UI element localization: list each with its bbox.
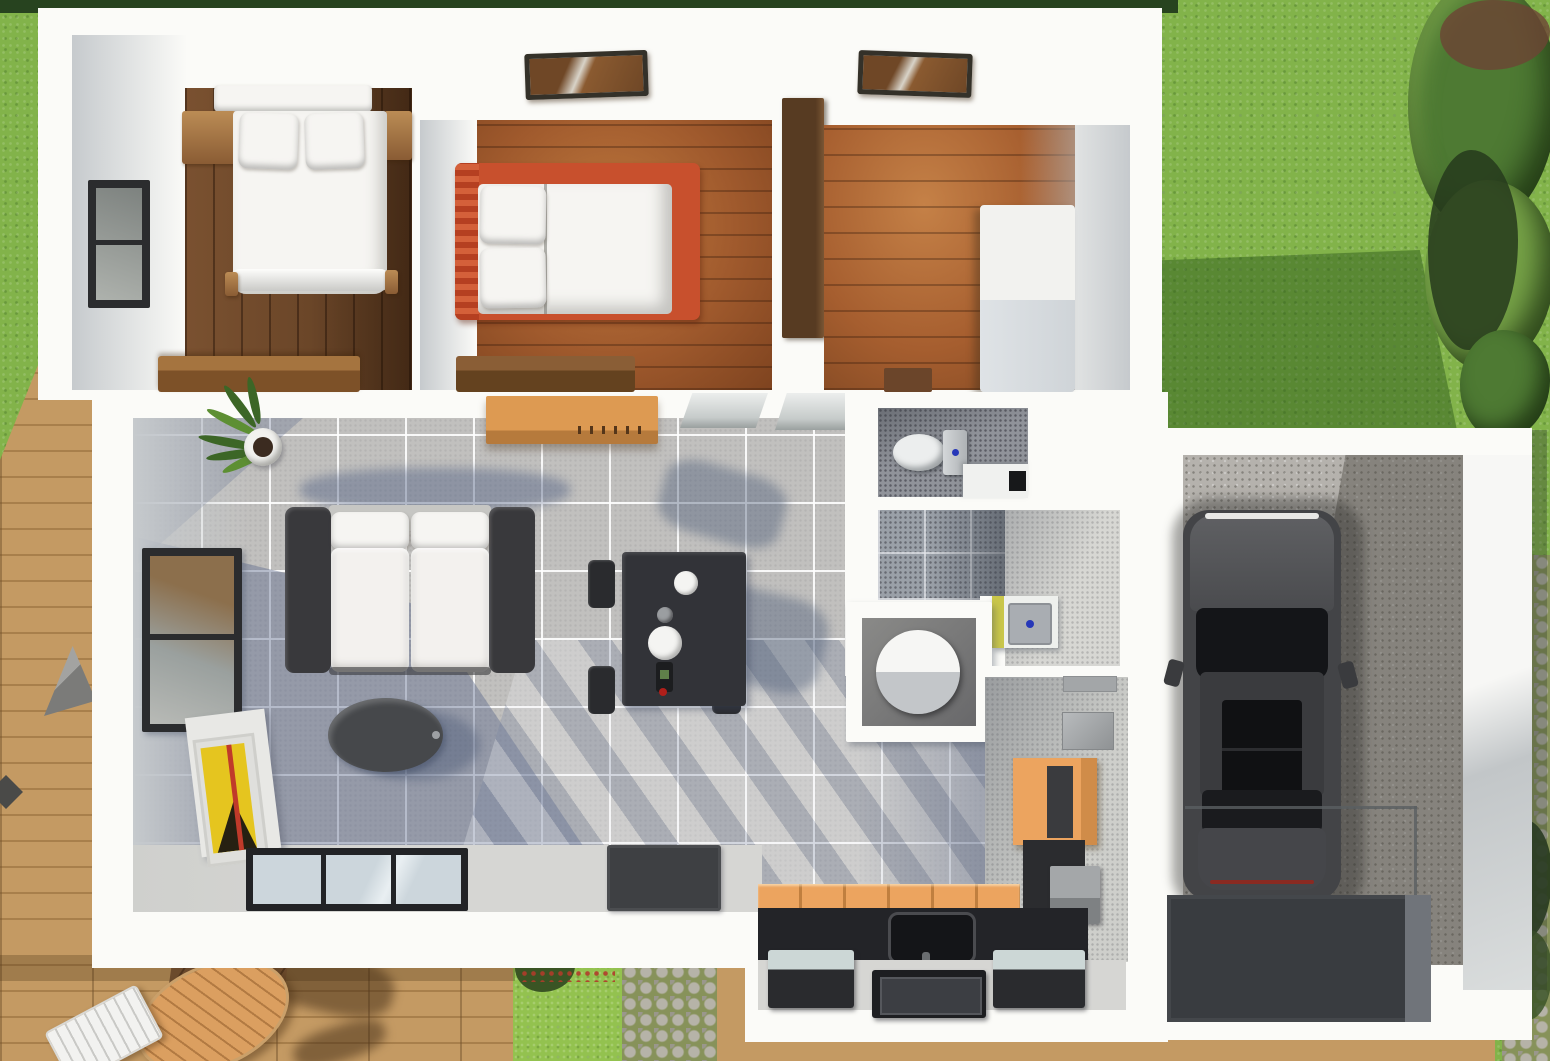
floor-glass-mullion-2 [391, 855, 396, 904]
plant-pot [244, 428, 282, 466]
living-window-glass [150, 556, 234, 724]
bedroom1-dresser [158, 356, 360, 392]
living-window-bar [150, 634, 234, 640]
plant-soil [253, 437, 273, 457]
garage-wall-shadow-grass [1532, 430, 1547, 990]
bedroom3-step [884, 368, 932, 392]
plate-small [674, 571, 698, 595]
bed1-footroll [229, 269, 391, 291]
car [1178, 505, 1346, 905]
tv-shelf-vents [578, 426, 648, 434]
bed2-headboard-slats [455, 163, 479, 320]
bed1-foot-left [225, 272, 238, 296]
kitchen-appliance-2 [993, 950, 1085, 1008]
bathroom-mid-shade [930, 510, 1005, 600]
bed1-pillow-right [304, 112, 365, 170]
dining-chair-2 [588, 666, 615, 714]
bathroom-sink-unit [992, 596, 1058, 648]
bedroom3-cabinet-lower [980, 300, 1075, 392]
clerestory-window-1 [680, 393, 768, 428]
sink-side-yellow [992, 596, 1004, 648]
dining-table [622, 552, 746, 706]
lawn-shadow [1125, 250, 1460, 445]
bed1-nightstand-left [182, 111, 236, 164]
bedroom2-skylight [524, 50, 649, 100]
kitchen-sink [888, 912, 976, 964]
tall-cabinet-door-dark [1047, 766, 1073, 838]
glass-rail-horizontal [1185, 806, 1417, 809]
kitchen-stove [872, 970, 986, 1018]
car-sunroof [1222, 700, 1302, 800]
coffee-table-knob [432, 731, 440, 739]
garage-right-wall-shade [1463, 455, 1532, 990]
car-roofline-strip [1205, 513, 1319, 519]
sofa-backcushion-left [331, 512, 409, 550]
coffee-table [328, 698, 443, 772]
bed1-nightstand-right [384, 111, 412, 160]
bed1-pillow-left [238, 112, 299, 170]
toilet-bowl [893, 434, 945, 471]
sink-basin [1008, 603, 1052, 645]
car-taillight [1210, 880, 1314, 884]
artwork-picture [200, 743, 257, 854]
sink-drain [1026, 620, 1034, 628]
tv-shelf [486, 396, 658, 444]
car-sunroof-seam [1222, 748, 1302, 751]
toilet-flush-button [952, 449, 959, 456]
car-windshield [1196, 608, 1328, 680]
bottle-red-dot [659, 688, 667, 696]
bedroom3-wardrobe [782, 98, 824, 338]
driveway-curb [1405, 895, 1431, 1022]
floorplan-render [0, 0, 1550, 1061]
entry-rug [607, 845, 721, 911]
bedroom3-skylight [857, 50, 972, 98]
kitchen-appliance-1 [768, 950, 854, 1008]
kitchen-wall-panel-2 [1062, 712, 1114, 750]
sofa-base-shadow [329, 667, 491, 675]
bottle-label [660, 670, 669, 679]
bed1-headboard [214, 85, 372, 112]
sofa [285, 505, 535, 675]
stove-glass [880, 977, 982, 1015]
tall-cabinet-side [1081, 758, 1097, 845]
wc-vanity-basin [1009, 471, 1026, 491]
shower-cylinder [876, 630, 960, 714]
floor-glass-pane [253, 855, 461, 904]
sofa-arm-left [285, 507, 331, 673]
dining-chair-1 [588, 560, 615, 608]
plate-large [648, 626, 682, 660]
shower-interior [862, 618, 976, 726]
sofa-seat-left [331, 548, 409, 672]
bed2-pillow-top [479, 185, 546, 244]
wc-vanity [963, 464, 1028, 498]
bed2-pillow-bottom [479, 247, 546, 308]
floor-glass-mullion-1 [321, 855, 326, 904]
potted-plant [196, 394, 296, 482]
sofa-backcushion-right [411, 512, 489, 550]
bedroom1-window-bar [96, 240, 142, 245]
driveway-pad [1167, 895, 1417, 1022]
kitchen-wall-panel-1 [1063, 676, 1117, 692]
artwork-dark-shape [206, 787, 257, 854]
living-window-left [142, 548, 242, 732]
sofa-arm-right [489, 507, 535, 673]
car-rear-window [1202, 790, 1322, 832]
floor-glass-door [246, 848, 468, 911]
bedroom1-window [88, 180, 150, 308]
bedroom3-cabinet [980, 205, 1075, 392]
bed1-foot-right [385, 270, 398, 294]
car-hood [1190, 515, 1334, 611]
kitchen-tall-cabinet [1013, 758, 1097, 845]
bedroom2-dresser [456, 356, 635, 392]
bowl-gray [657, 607, 673, 623]
sofa-seat-right [411, 548, 489, 672]
